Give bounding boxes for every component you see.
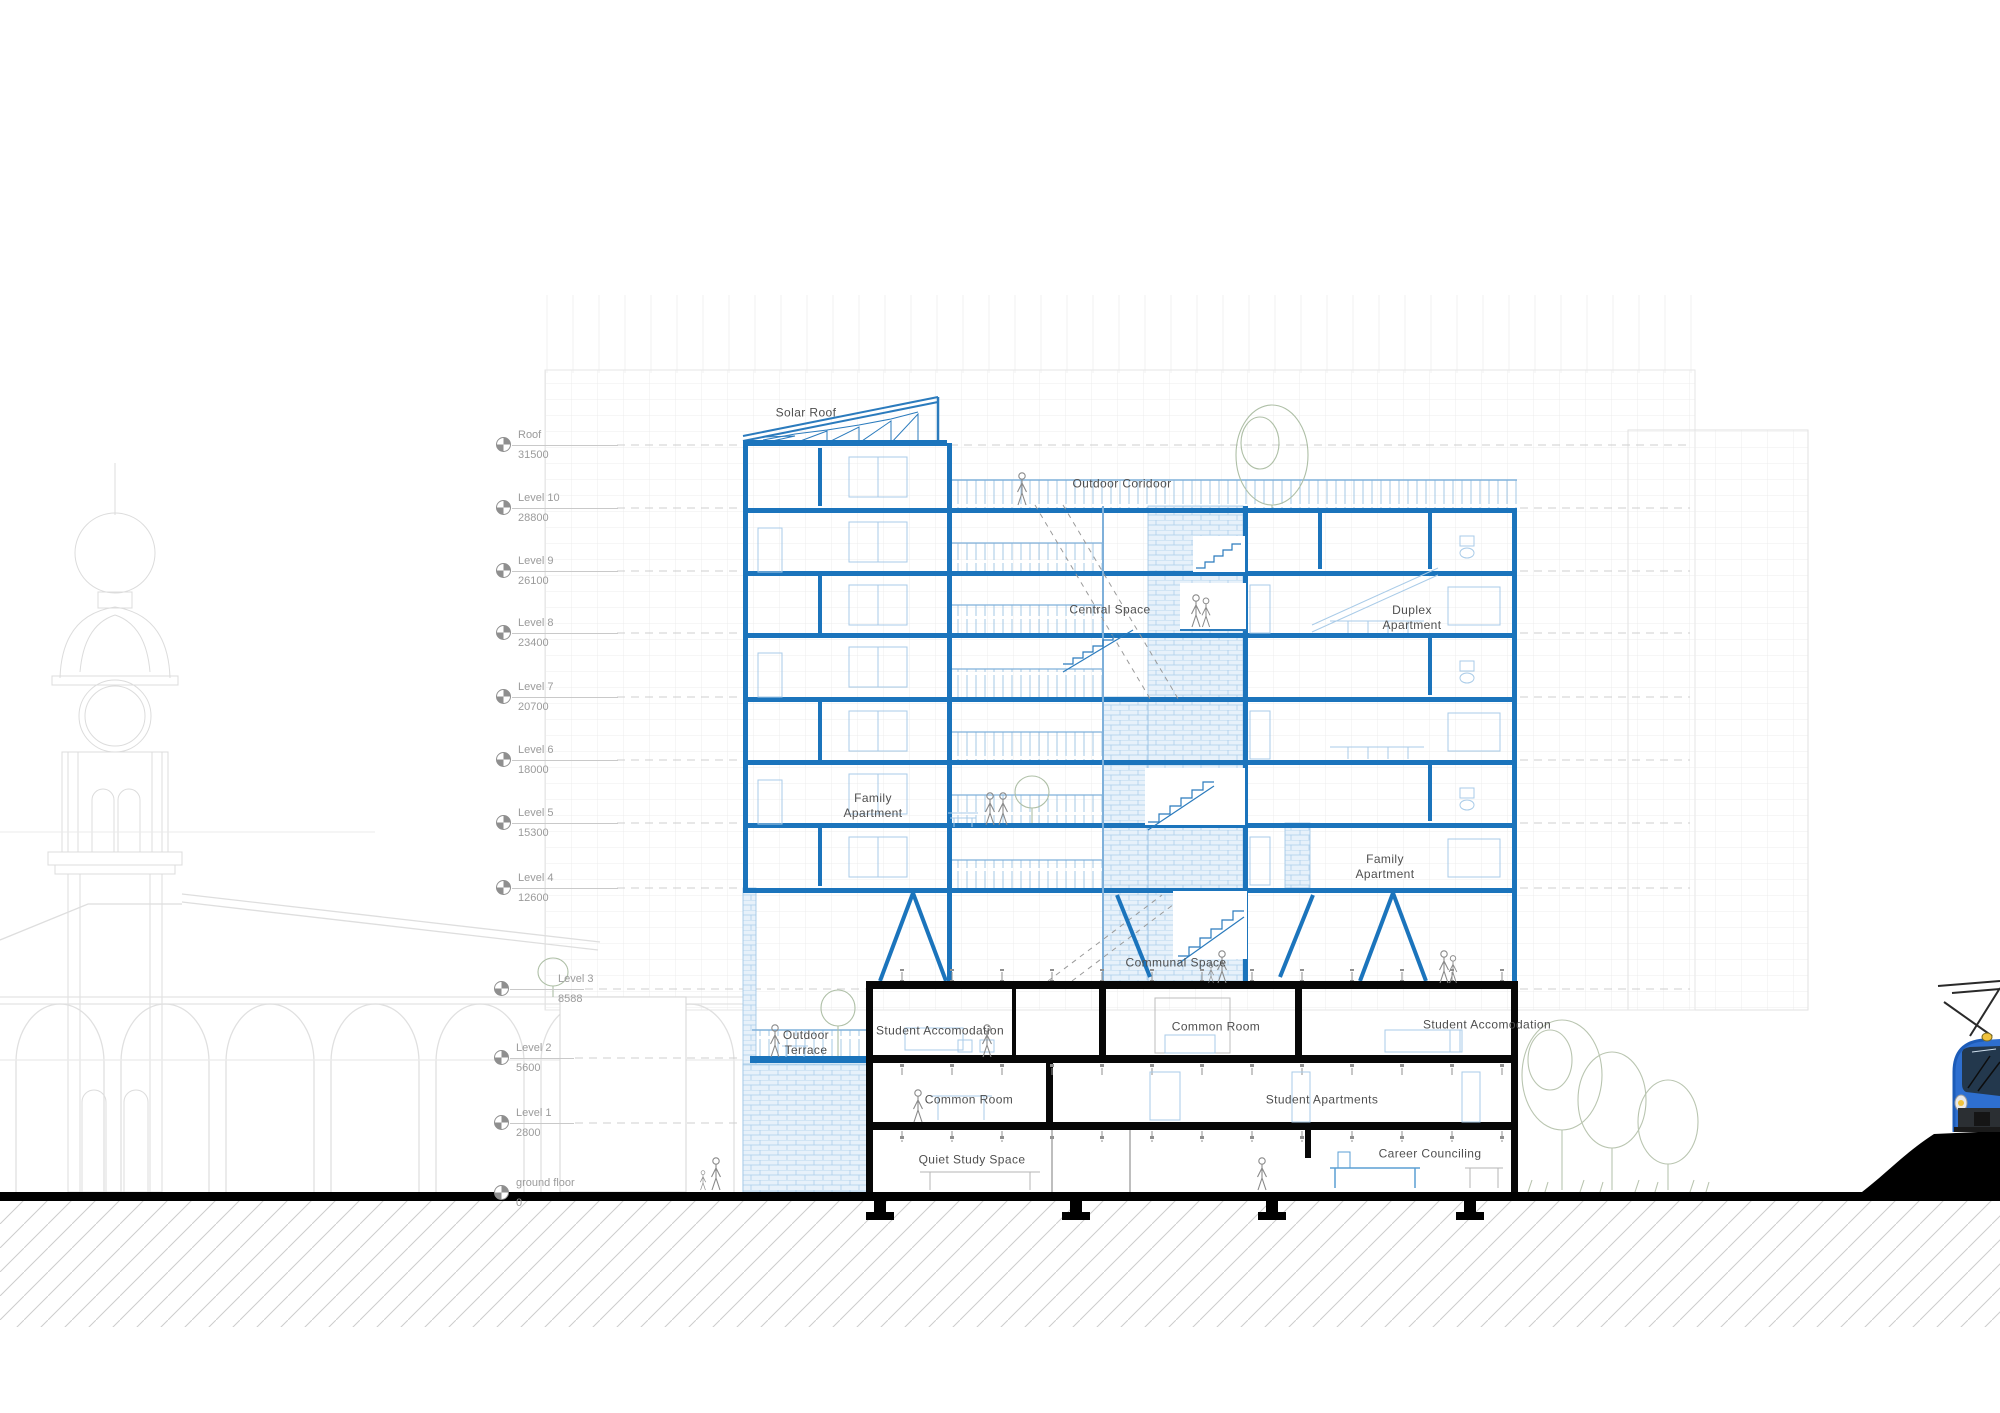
datum-icon [496,880,511,895]
datum-icon [496,563,511,578]
label-duplex-apartment: Duplex Apartment [1370,603,1454,633]
datum-icon [496,500,511,515]
datum-icon [494,981,509,996]
section-linework [0,0,2000,1413]
soil-hatch [0,1201,2000,1327]
foreground-building-mass [560,997,686,1192]
datum-icon [496,625,511,640]
label-common-room-upper: Common Room [1172,1020,1260,1035]
trees [1522,1020,1709,1192]
label-career-counciling: Career Counciling [1379,1147,1482,1162]
label-student-accomodation-left: Student Accomodation [876,1024,1004,1039]
label-outdoor-corridor: Outdoor Coridoor [1072,477,1171,492]
label-common-room-lower: Common Room [925,1093,1013,1108]
datum-icon [496,689,511,704]
label-student-accomodation-right: Student Accomodation [1423,1018,1551,1033]
clock-tower [48,463,182,1192]
label-family-apartment-right: Family Apartment [1343,852,1427,882]
label-quiet-study-space: Quiet Study Space [919,1153,1026,1168]
label-solar-roof: Solar Roof [776,406,837,421]
datum-icon [496,752,511,767]
datum-icon [496,437,511,452]
datum-icon [494,1050,509,1065]
label-family-apartment-upper: Family Apartment [831,791,915,821]
tram [1938,981,2000,1132]
label-student-apartments: Student Apartments [1266,1093,1379,1108]
embankment [1862,1131,2000,1192]
datum-icon [496,815,511,830]
label-outdoor-terrace: Outdoor Terrace [764,1028,848,1058]
label-communal-space: Communal Space [1126,956,1227,971]
section-drawing: Roof31500 Level 1028800 Level 926100 Lev… [0,0,2000,1413]
label-central-space: Central Space [1069,603,1150,618]
datum-icon [494,1185,509,1200]
datum-icon [494,1115,509,1130]
